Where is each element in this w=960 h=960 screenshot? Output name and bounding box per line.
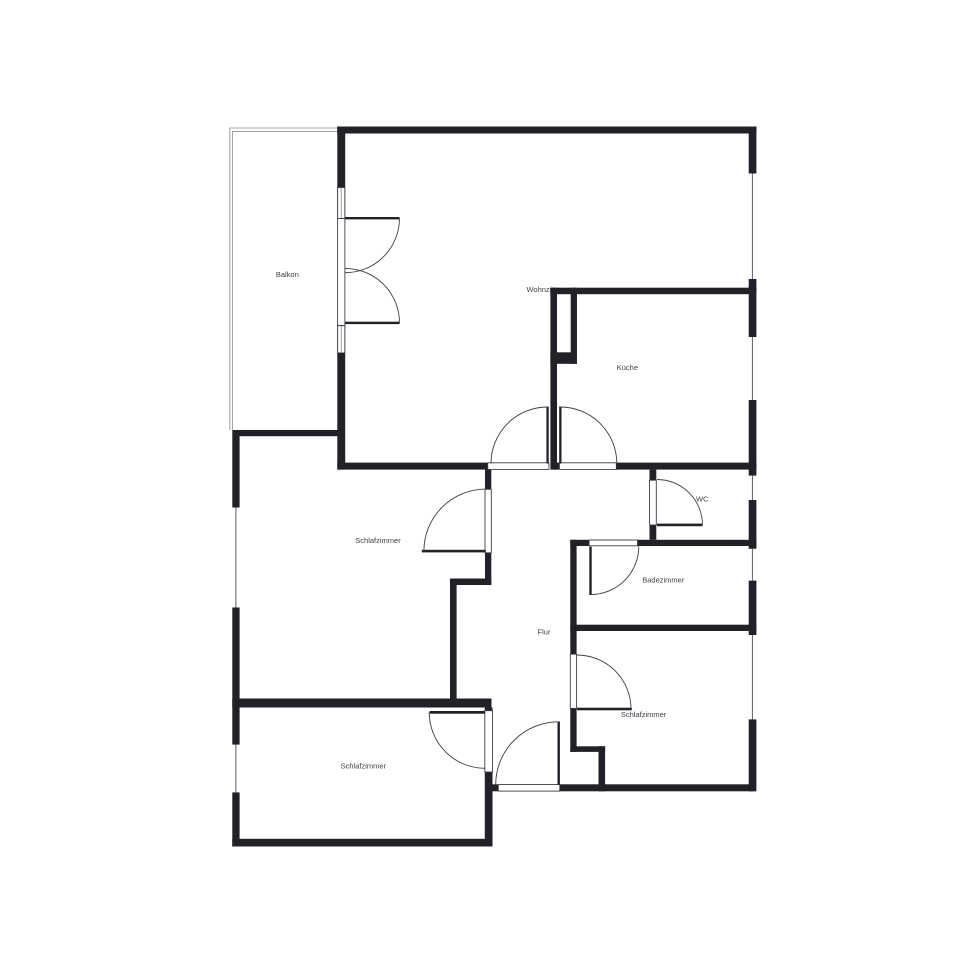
- svg-text:Küche: Küche: [617, 363, 638, 372]
- svg-text:Schlafzimmer: Schlafzimmer: [621, 710, 667, 719]
- svg-text:Balkon: Balkon: [276, 270, 299, 279]
- svg-text:Schlafzimmer: Schlafzimmer: [341, 762, 387, 771]
- svg-text:WC: WC: [696, 495, 709, 504]
- svg-text:Badezimmer: Badezimmer: [642, 576, 685, 585]
- svg-text:Flur: Flur: [538, 628, 551, 637]
- svg-text:Schlafzimmer: Schlafzimmer: [355, 536, 401, 545]
